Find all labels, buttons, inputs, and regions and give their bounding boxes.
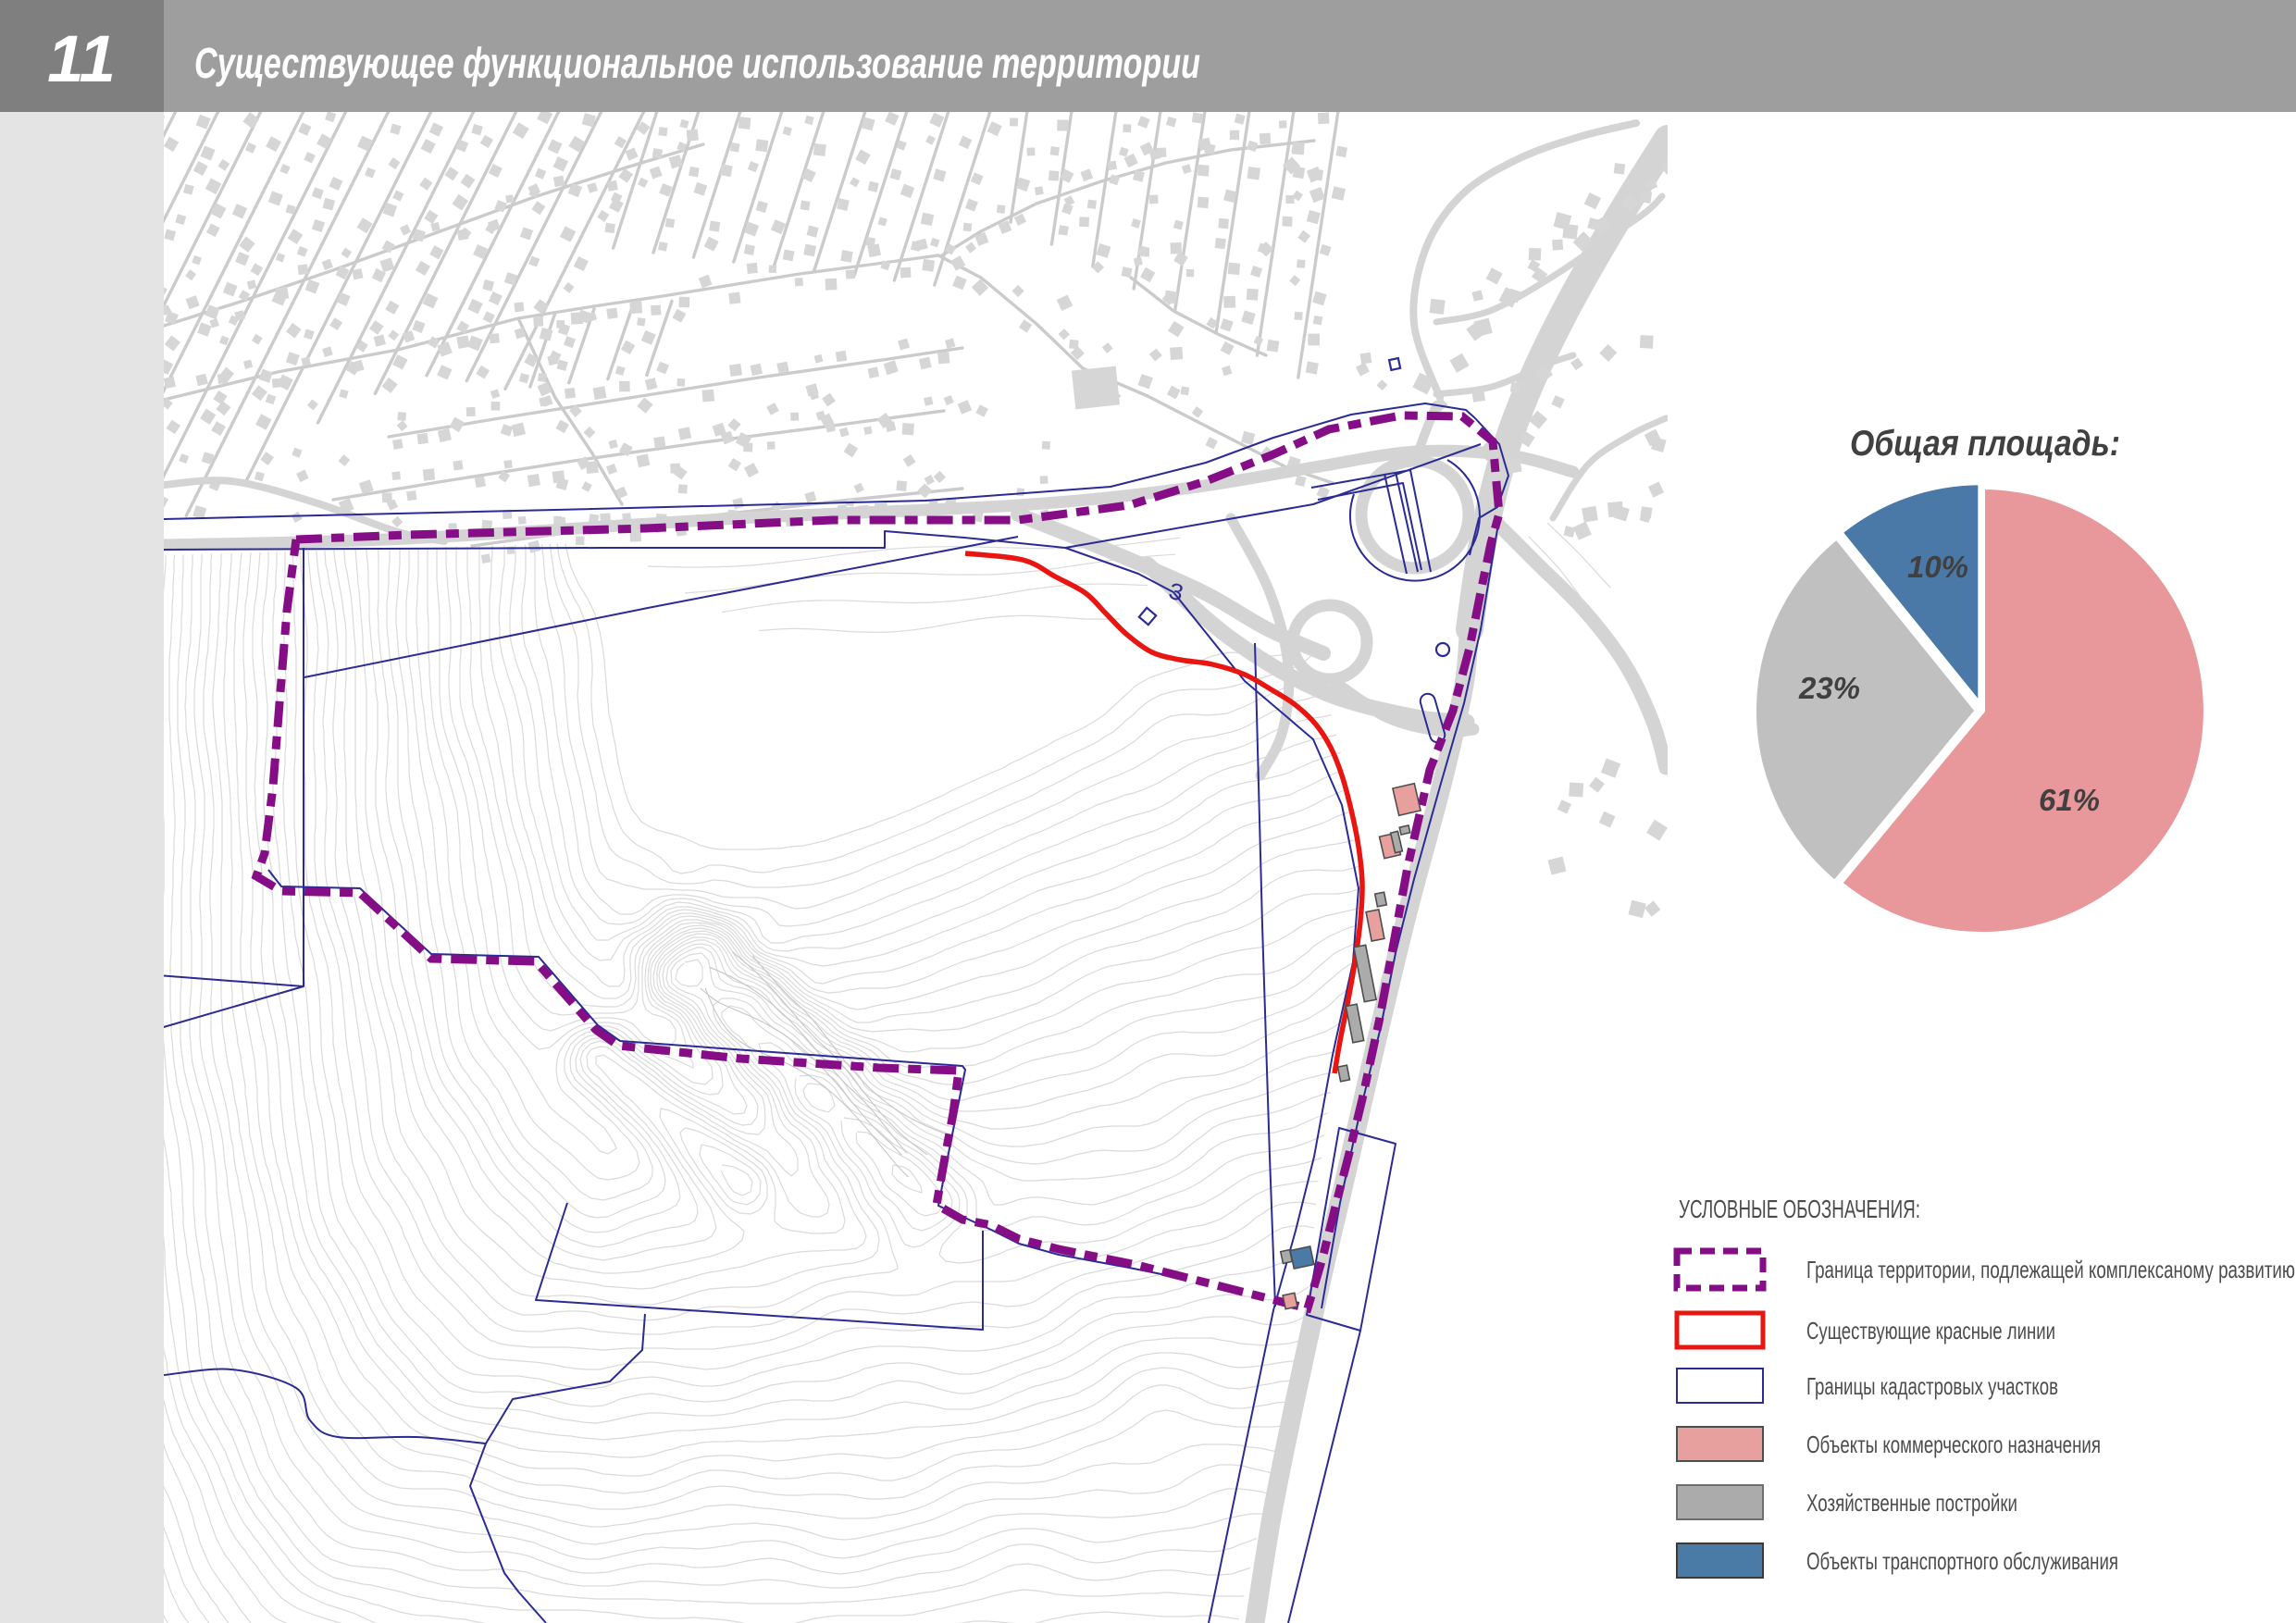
svg-text:11: 11 <box>47 23 116 96</box>
svg-text:Хозяйственные постройки: Хозяйственные постройки <box>1806 1489 2017 1517</box>
svg-text:Границы кадастровых участков: Границы кадастровых участков <box>1806 1372 2058 1400</box>
svg-text:10%: 10% <box>1907 550 1968 584</box>
svg-text:Общая площадь:: Общая площадь: <box>1850 424 2120 464</box>
svg-text:Объекты транспортного обслужив: Объекты транспортного обслуживания <box>1806 1547 2118 1575</box>
svg-text:Граница территории, подлежащей: Граница территории, подлежащей комплекса… <box>1806 1256 2295 1283</box>
svg-text:Существующее функциональное ис: Существующее функциональное использовани… <box>194 39 1200 87</box>
svg-text:Объекты коммерческого назначен: Объекты коммерческого назначения <box>1806 1431 2101 1458</box>
svg-text:61%: 61% <box>2039 783 2100 817</box>
svg-text:Существующие красные линии: Существующие красные линии <box>1806 1317 2055 1344</box>
svg-text:УСЛОВНЫЕ ОБОЗНАЧЕНИЯ:: УСЛОВНЫЕ ОБОЗНАЧЕНИЯ: <box>1679 1195 1920 1223</box>
svg-text:23%: 23% <box>1798 671 1860 705</box>
